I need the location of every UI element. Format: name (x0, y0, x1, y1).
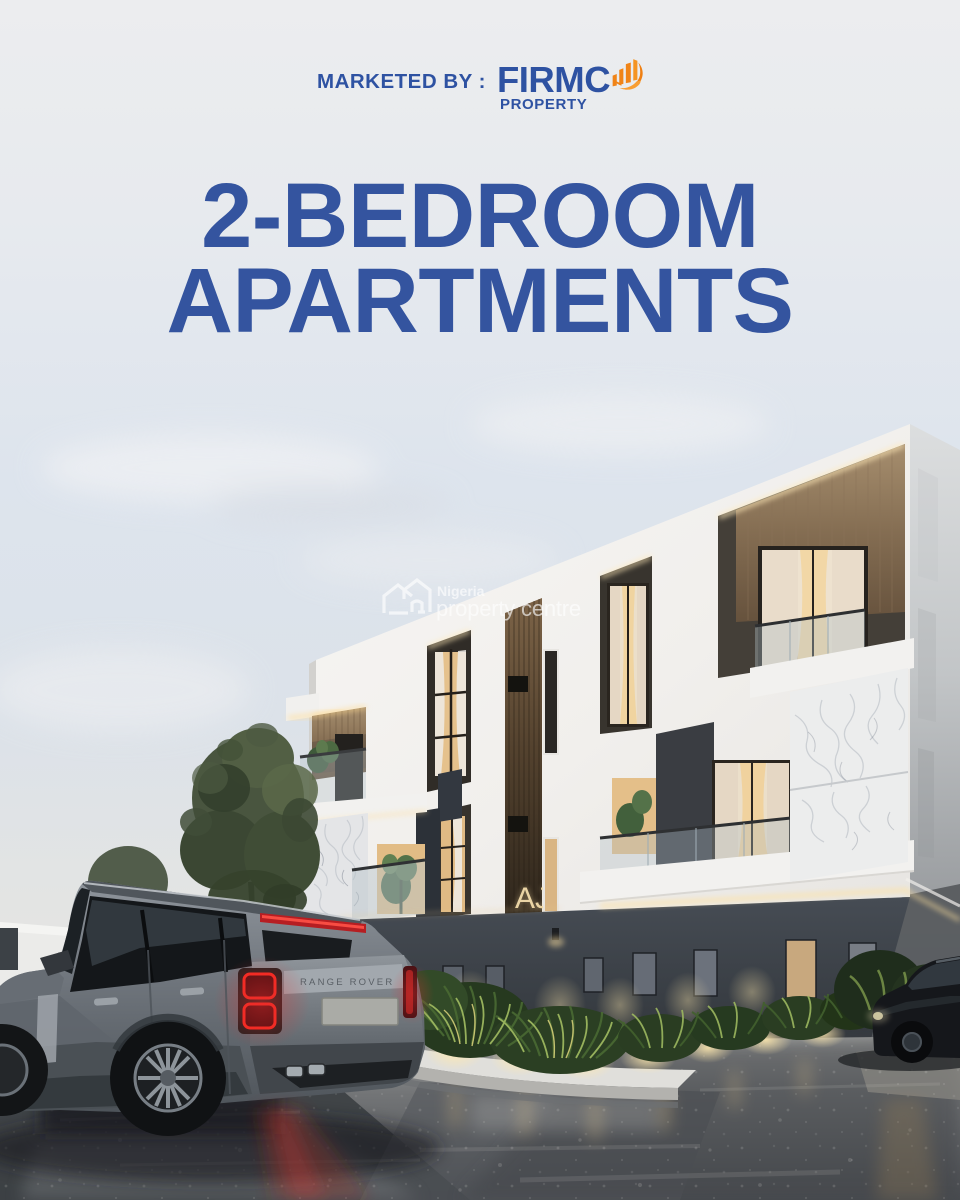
svg-text:RANGE ROVER: RANGE ROVER (300, 977, 394, 988)
svg-text:property centre: property centre (436, 596, 581, 621)
